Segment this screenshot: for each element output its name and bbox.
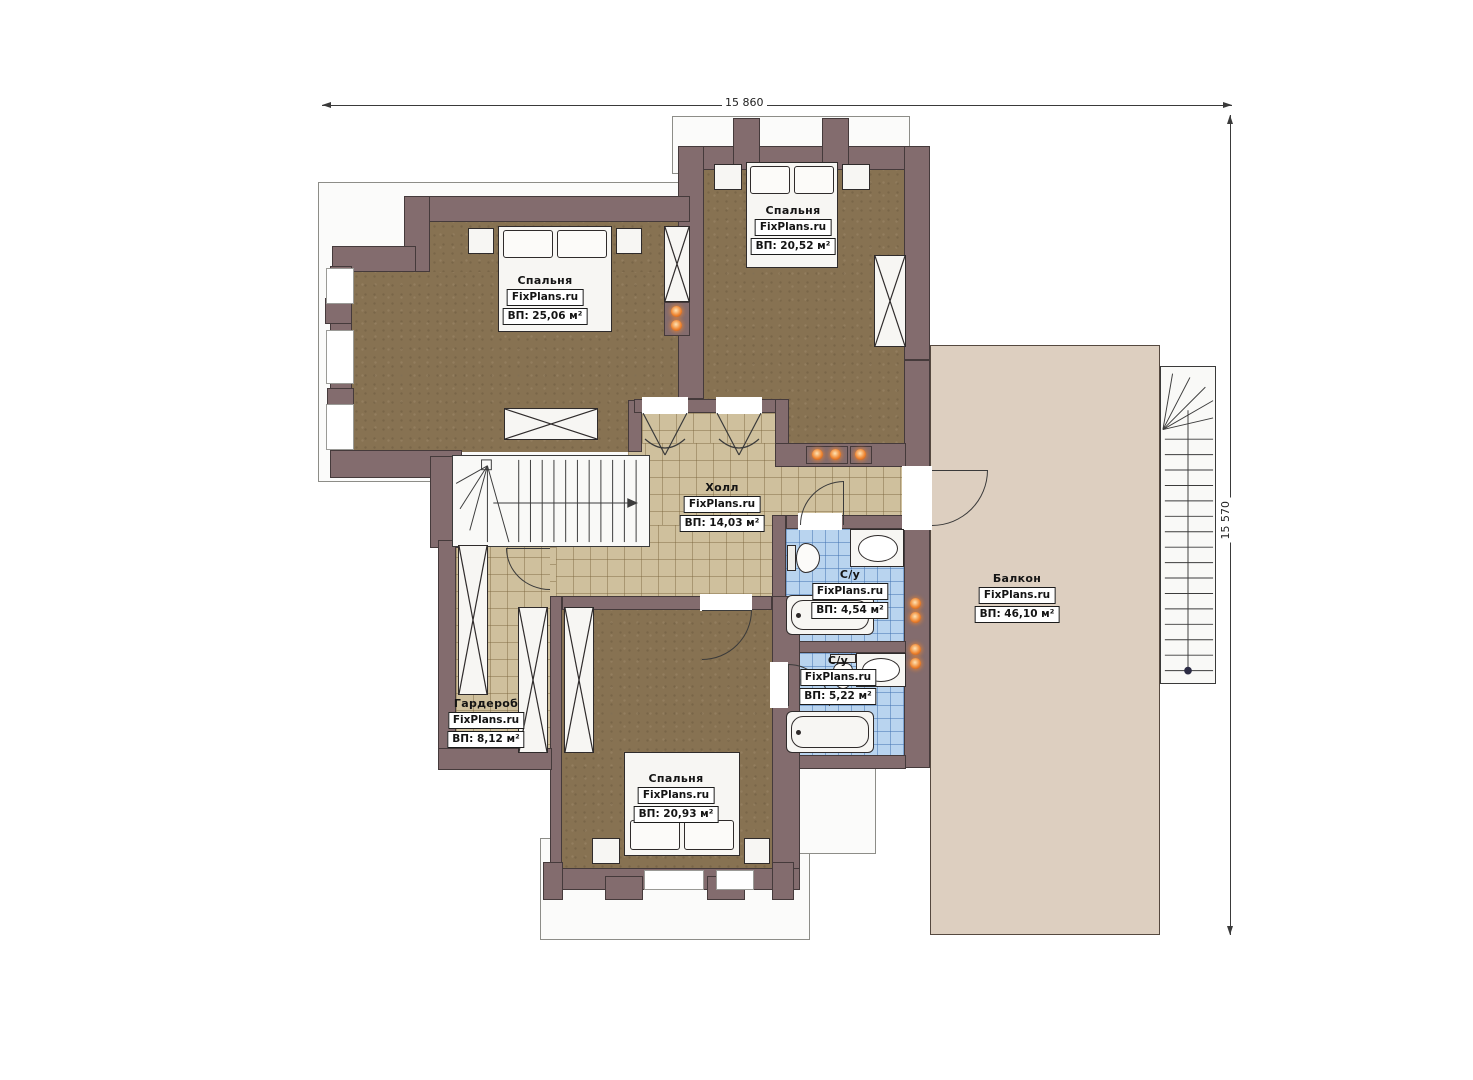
room-watermark: FixPlans.ru [755,219,831,236]
pillow-symbol [630,820,680,850]
room-area: ВП: 46,10 м² [975,606,1060,623]
pillow-symbol [503,230,553,258]
window [644,870,704,890]
nightstand-symbol [616,228,642,254]
room-watermark: FixPlans.ru [638,787,714,804]
window [326,330,354,384]
roof-outline-corner [792,762,876,854]
indicator-dot [910,612,921,623]
window [716,870,754,890]
indicator-dot [855,449,866,460]
room-area: ВП: 8,12 м² [447,731,524,748]
dimension-arrow-right [1223,102,1232,108]
room-name: Спальня [649,772,704,785]
interior-staircase [452,455,650,547]
door-opening [642,397,688,414]
nightstand-symbol [744,838,770,864]
room-watermark: FixPlans.ru [979,587,1055,604]
closet-symbol [458,545,488,695]
room-watermark: FixPlans.ru [800,669,876,686]
sink-bowl-symbol [858,535,898,562]
nightstand-symbol [592,838,620,864]
dimension-arrow-up [1227,115,1233,124]
room-name: С/у [828,654,848,667]
door-opening [716,397,762,414]
room-name: Спальня [766,204,821,217]
indicator-dot [812,449,823,460]
door-opening [770,662,788,708]
dimension-height-label: 15 570 [1219,498,1232,543]
pillow-symbol [557,230,607,258]
room-area: ВП: 4,54 м² [811,602,888,619]
room-label-balcony: Балкон FixPlans.ru ВП: 46,10 м² [975,572,1060,623]
room-name: С/у [840,568,860,581]
wall [404,196,690,222]
nightstand-symbol [714,164,742,190]
room-name: Балкон [993,572,1041,585]
dimension-line-top [322,105,1232,106]
indicator-dot [910,644,921,655]
room-area: ВП: 25,06 м² [503,308,588,325]
room-label-wardrobe: Гардероб FixPlans.ru ВП: 8,12 м² [447,697,524,748]
closet-symbol [504,408,598,440]
room-area: ВП: 14,03 м² [680,515,765,532]
pillow-symbol [684,820,734,850]
indicator-dot [671,306,682,317]
room-watermark: FixPlans.ru [684,496,760,513]
room-label-hall: Холл FixPlans.ru ВП: 14,03 м² [680,481,765,532]
closet-symbol [874,255,906,347]
wall [550,596,562,890]
facade-pillar [605,876,643,900]
closet-symbol [664,226,690,302]
floor-plan-canvas: 15 860 15 570 [0,0,1473,1080]
door-opening-balcony [902,466,932,530]
room-name: Холл [705,481,738,494]
toilet-symbol [787,545,796,571]
room-area: ВП: 20,93 м² [634,806,719,823]
room-label-bedroom-top: Спальня FixPlans.ru ВП: 20,52 м² [751,204,836,255]
pillow-symbol [794,166,834,194]
room-name: Гардероб [454,697,518,710]
room-watermark: FixPlans.ru [507,289,583,306]
room-name: Спальня [518,274,573,287]
room-watermark: FixPlans.ru [448,712,524,729]
nightstand-symbol [842,164,870,190]
indicator-dot [910,598,921,609]
nightstand-symbol [468,228,494,254]
room-label-bathroom-1: С/у FixPlans.ru ВП: 4,54 м² [811,568,888,619]
room-area: ВП: 20,52 м² [751,238,836,255]
room-label-bedroom-left: Спальня FixPlans.ru ВП: 25,06 м² [503,274,588,325]
indicator-dot [671,320,682,331]
room-label-bathroom-2: С/у FixPlans.ru ВП: 5,22 м² [799,654,876,705]
exterior-staircase [1160,366,1216,684]
bathtub-symbol [786,711,874,753]
indicator-dot [830,449,841,460]
room-label-bedroom-bottom: Спальня FixPlans.ru ВП: 20,93 м² [634,772,719,823]
door-swing-vestibule [716,413,762,457]
door-opening [700,594,752,611]
wall [904,146,930,360]
facade-pillar [543,862,563,900]
facade-pillar [772,862,794,900]
window [326,404,354,450]
wall [904,360,930,470]
dimension-arrow-down [1227,926,1233,935]
dimension-width-label: 15 860 [722,96,767,109]
room-watermark: FixPlans.ru [812,583,888,600]
wall [786,641,906,653]
room-area: ВП: 5,22 м² [799,688,876,705]
floor-balcony [930,345,1160,935]
dimension-arrow-left [322,102,331,108]
door-swing-vestibule [642,413,688,457]
indicator-dot [910,658,921,669]
closet-symbol [564,607,594,753]
pillow-symbol [750,166,790,194]
window [326,268,354,304]
